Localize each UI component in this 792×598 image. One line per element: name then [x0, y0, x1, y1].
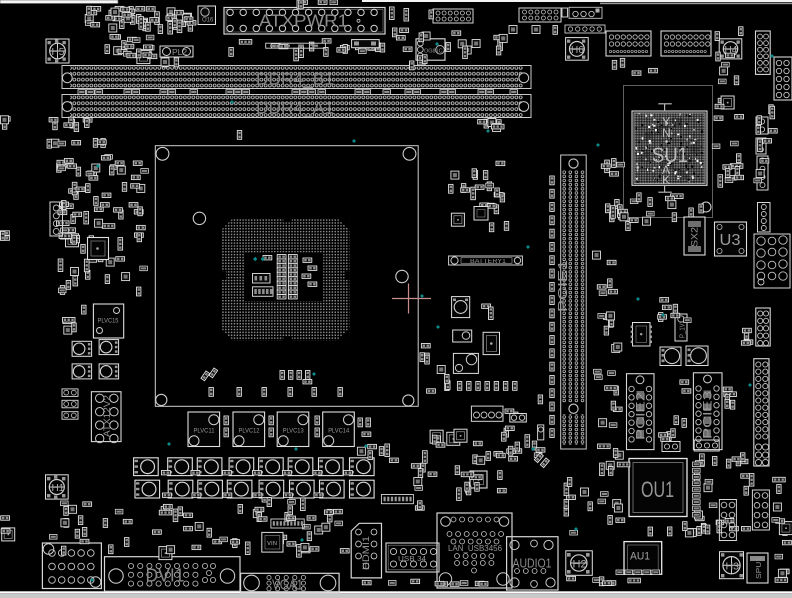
svg-text:PCIE2: PCIE2 [636, 392, 648, 440]
svg-text:OU1: OU1 [641, 477, 674, 502]
svg-text:PCIE3: PCIE3 [703, 391, 715, 439]
svg-text:PCIE1: PCIE1 [555, 260, 570, 312]
svg-text:HDMI1: HDMI1 [361, 536, 372, 570]
svg-text:N: N [662, 126, 671, 140]
svg-text:DDR4_B1: DDR4_B1 [256, 70, 334, 89]
svg-text:U3: U3 [720, 232, 741, 249]
svg-text:BATTERY1: BATTERY1 [470, 259, 507, 265]
svg-text:H1: H1 [52, 483, 65, 494]
svg-text:DDR4_A1: DDR4_A1 [256, 99, 334, 118]
svg-text:USB 34: USB 34 [398, 554, 426, 563]
svg-text:ATX12V2: ATX12V2 [102, 395, 113, 437]
svg-text:SX2: SX2 [690, 227, 701, 247]
svg-text:AU1: AU1 [630, 551, 650, 563]
svg-text:H6: H6 [571, 45, 584, 56]
svg-text:PLVC11: PLVC11 [194, 428, 215, 435]
svg-text:PLVC15: PLVC15 [98, 318, 120, 325]
svg-text:K: K [662, 173, 670, 187]
svg-text:H2: H2 [573, 559, 587, 571]
svg-text:PLVC12: PLVC12 [239, 428, 260, 435]
svg-text:VGA1: VGA1 [272, 577, 303, 594]
svg-text:SPU1: SPU1 [754, 557, 763, 579]
svg-text:O16: O16 [202, 18, 214, 24]
svg-text:DVI1: DVI1 [146, 566, 185, 586]
svg-text:PL2: PL2 [172, 47, 187, 57]
svg-text:PLVC14: PLVC14 [328, 428, 349, 435]
svg-text:VIN: VIN [267, 541, 277, 547]
svg-text:AUDIO1: AUDIO1 [513, 557, 552, 571]
svg-text:LAN_USB3456: LAN_USB3456 [448, 544, 503, 553]
svg-text:H5: H5 [52, 47, 65, 58]
svg-text:OG81C: OG81C [424, 49, 443, 55]
svg-text:PLVC13: PLVC13 [283, 428, 304, 435]
svg-text:ATXPWR1: ATXPWR1 [259, 11, 348, 31]
svg-text:H3: H3 [726, 561, 740, 573]
